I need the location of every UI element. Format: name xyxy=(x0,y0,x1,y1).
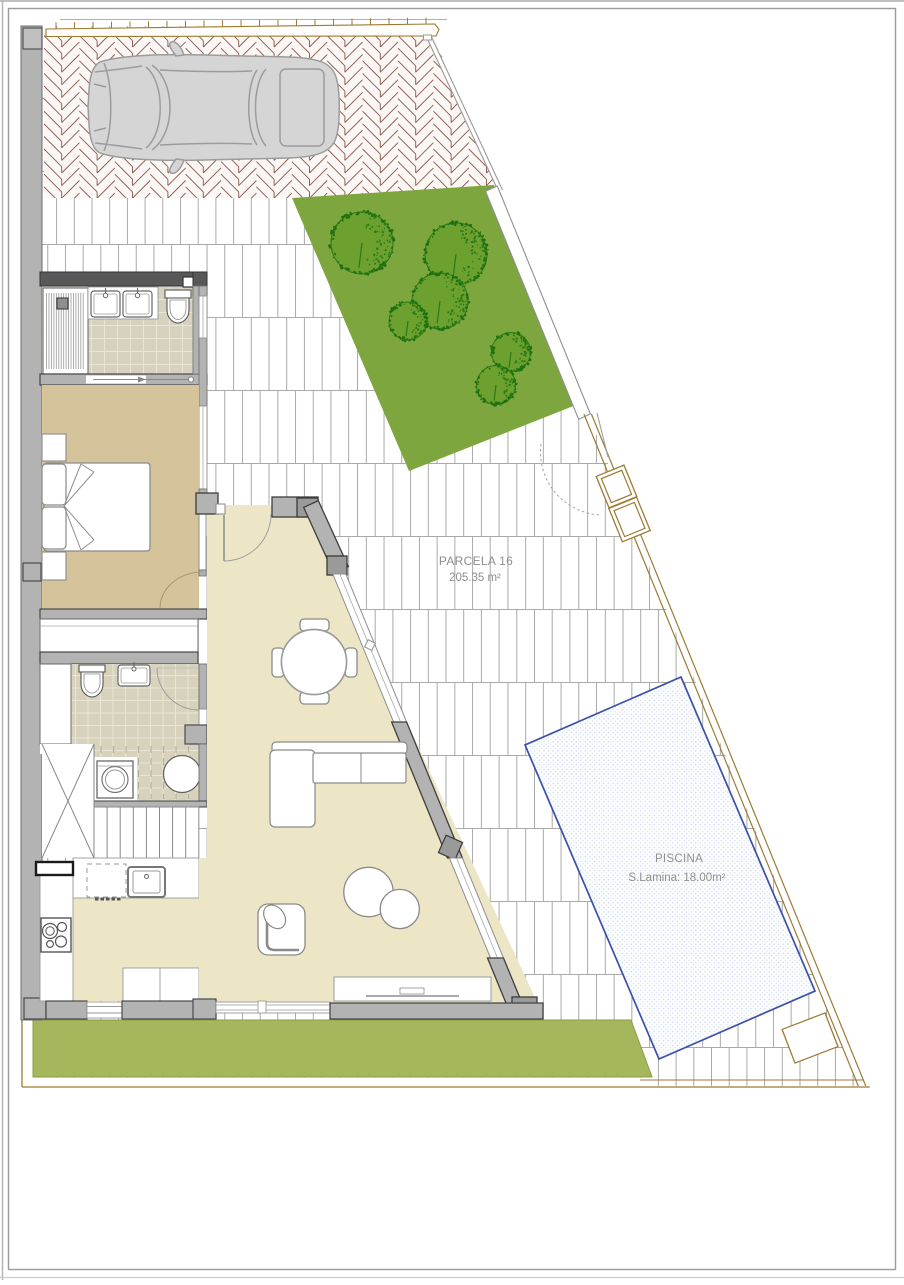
svg-text:PISCINA: PISCINA xyxy=(655,853,703,865)
svg-text:S.Lamina: 18.00m²: S.Lamina: 18.00m² xyxy=(628,872,725,884)
svg-text:205.35 m²: 205.35 m² xyxy=(449,572,501,584)
svg-text:PARCELA 16: PARCELA 16 xyxy=(439,554,513,568)
